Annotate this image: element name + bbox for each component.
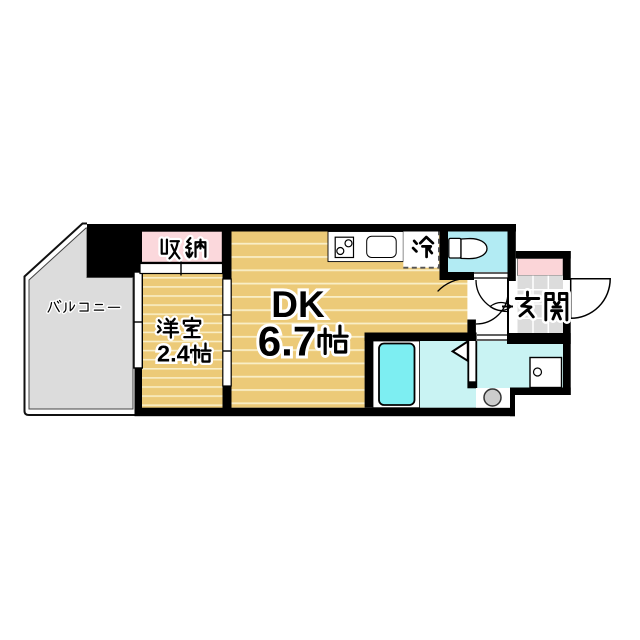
svg-text:6.7: 6.7 <box>258 318 316 365</box>
svg-text:2.4: 2.4 <box>157 341 190 367</box>
